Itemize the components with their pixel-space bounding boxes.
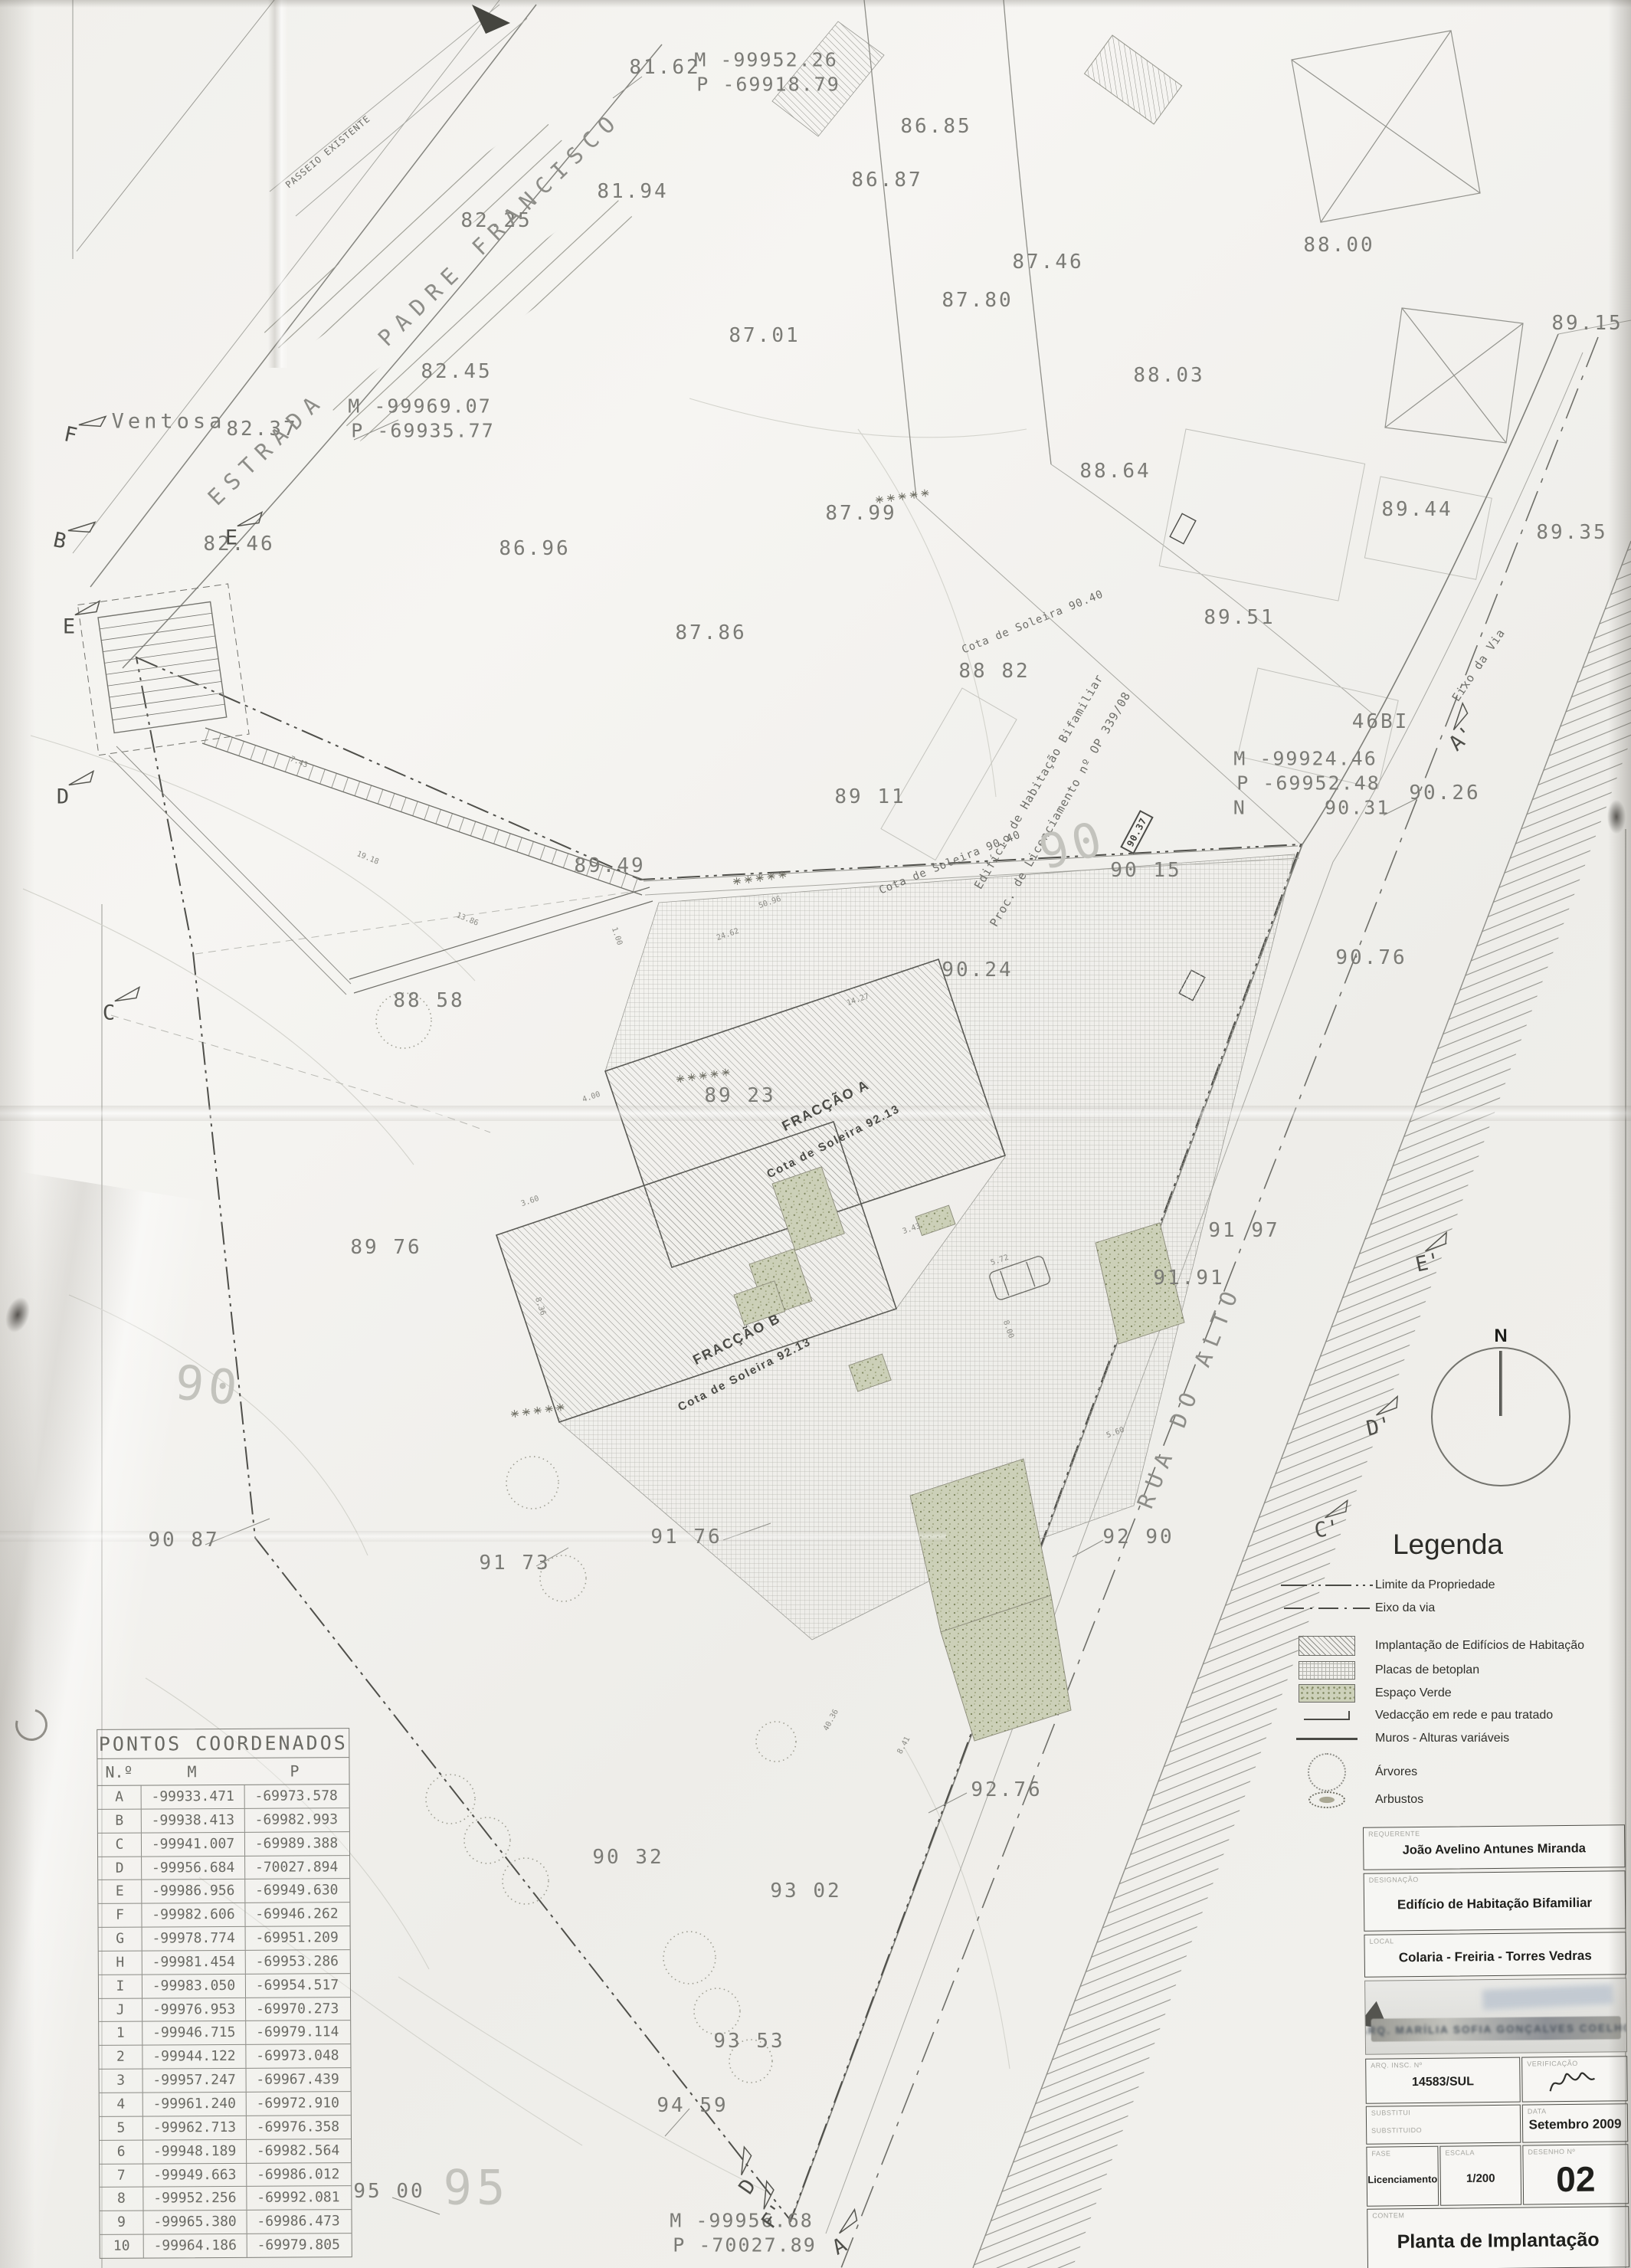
requerente-box: REQUERENTE João Avelino Antunes Miranda xyxy=(1363,1824,1626,1870)
section-marker: E' xyxy=(1413,1248,1443,1277)
point-id: 1 xyxy=(99,2022,142,2045)
point-p: -69992.081 xyxy=(246,2186,349,2210)
legend-item-label: Árvores xyxy=(1375,1765,1417,1779)
point-m: -99981.454 xyxy=(142,1951,245,1975)
plan-label: 90 15 xyxy=(1110,859,1181,882)
plan-label: 89 11 xyxy=(834,785,906,808)
point-p: -69979.805 xyxy=(247,2234,350,2257)
point-m: -99956.684 xyxy=(141,1856,244,1880)
plan-label: 89 76 xyxy=(350,1236,421,1259)
plan-label: 86.87 xyxy=(851,169,922,192)
table-row: G -99978.774 -69951.209 xyxy=(99,1926,350,1952)
plan-label: 81.94 xyxy=(597,180,668,203)
plan-label: 88.64 xyxy=(1079,460,1151,483)
local-box: LOCAL Colaria - Freiria - Torres Vedras xyxy=(1364,1932,1626,1978)
table-row: F -99982.606 -69946.262 xyxy=(98,1903,349,1928)
table-row: 7 -99949.663 -69986.012 xyxy=(100,2163,351,2188)
table-row: 9 -99965.380 -69986.473 xyxy=(100,2210,351,2235)
plan-label: 89.49 xyxy=(574,854,645,877)
point-m: -99949.663 xyxy=(142,2163,246,2187)
plan-label: N 90.31 xyxy=(1233,797,1390,819)
plan-label: 46BI xyxy=(1352,710,1410,733)
plan-label: 87.80 xyxy=(942,289,1013,312)
substituido-label: SUBSTITUIDO xyxy=(1371,2126,1422,2135)
legend-item: Implantação de Edifícios de Habitação xyxy=(1279,1636,1584,1656)
architect-stamp: ARQ. MARÍLIA SOFIA GONÇALVES COELHO xyxy=(1364,1978,1627,2055)
plan-label: 92 90 xyxy=(1102,1526,1174,1549)
legend-title: Legenda xyxy=(1268,1529,1628,1561)
plan-label: 88.03 xyxy=(1133,364,1204,387)
point-id: 4 xyxy=(100,2093,142,2116)
designacao-label: DESIGNAÇÃO xyxy=(1369,1876,1419,1884)
insc-value: 14583/SUL xyxy=(1366,2075,1519,2090)
plan-label: P -69918.79 xyxy=(696,74,840,96)
plan-label: 87.86 xyxy=(675,621,746,644)
scanned-site-plan-sheet: 81.62 M -99952.26 P -69918.79 86.85 86.8… xyxy=(0,0,1631,2268)
legend-swatch xyxy=(1279,1636,1375,1656)
escala-label: ESCALA xyxy=(1445,2148,1475,2156)
table-row: H -99981.454 -69953.286 xyxy=(99,1950,350,1975)
table-row: 2 -99944.122 -69973.048 xyxy=(99,2044,350,2070)
requerente-label: REQUERENTE xyxy=(1368,1830,1420,1838)
section-flag-icon xyxy=(74,598,103,622)
section-flag-icon xyxy=(1322,1497,1354,1525)
plan-label: 87.01 xyxy=(729,324,800,347)
legend-swatch xyxy=(1279,1791,1375,1808)
point-m: -99948.189 xyxy=(142,2140,246,2164)
plan-label: 95 00 xyxy=(353,2180,424,2203)
insc-label: ARQ. INSC. Nº xyxy=(1371,2061,1422,2070)
points-table: PONTOS COORDENADOS N.º M P A -99933.471 … xyxy=(97,1728,352,2259)
paper-edge-shadow xyxy=(0,0,1631,8)
plan-label: 88.00 xyxy=(1303,234,1374,257)
plan-label: 86.96 xyxy=(499,537,570,560)
point-p: -69972.910 xyxy=(246,2092,349,2116)
section-marker: E xyxy=(225,526,237,550)
plan-label: 91 73 xyxy=(479,1552,550,1575)
col-header-m: M xyxy=(140,1758,243,1785)
point-p: -69989.388 xyxy=(244,1832,348,1856)
plan-label: 81.62 xyxy=(629,56,700,79)
plan-label: 89.51 xyxy=(1204,606,1275,629)
substitui-label: SUBSTITUI xyxy=(1371,2109,1411,2117)
plan-label: 82.46 xyxy=(203,533,274,556)
point-m: -99944.122 xyxy=(142,2045,245,2069)
point-m: -99982.606 xyxy=(141,1903,244,1927)
point-m: -99976.953 xyxy=(142,1998,245,2021)
table-row: 8 -99952.256 -69992.081 xyxy=(100,2186,351,2211)
point-id: 7 xyxy=(100,2164,142,2187)
plan-label: 91 76 xyxy=(650,1526,722,1549)
plan-label: 90.26 xyxy=(1409,782,1480,805)
plan-label: P -69935.77 xyxy=(351,420,495,442)
section-marker: D xyxy=(57,785,69,809)
plan-label: 95 xyxy=(444,2160,510,2216)
section-marker: C xyxy=(103,1001,115,1025)
point-m: -99941.007 xyxy=(141,1833,244,1857)
points-table-header: N.º M P xyxy=(97,1758,349,1786)
substitui-box: SUBSTITUI SUBSTITUIDO xyxy=(1366,2105,1521,2145)
plan-label: Ventosa xyxy=(112,410,226,434)
point-id: 3 xyxy=(100,2070,142,2093)
plan-label: 88 58 xyxy=(393,989,464,1012)
legend-item-label: Implantação de Edifícios de Habitação xyxy=(1375,1639,1584,1653)
data-value: Setembro 2009 xyxy=(1523,2117,1627,2133)
plan-label: 89.44 xyxy=(1381,498,1453,521)
table-row: A -99933.471 -69973.578 xyxy=(98,1785,349,1810)
plan-label: M -99956.68 xyxy=(670,2210,814,2232)
table-row: I -99983.050 -69954.517 xyxy=(99,1974,350,1999)
stamp-band: ARQ. MARÍLIA SOFIA GONÇALVES COELHO xyxy=(1371,2016,1621,2041)
section-flag-icon xyxy=(236,510,265,533)
point-p: -69986.012 xyxy=(246,2163,349,2187)
plan-label: 90 87 xyxy=(148,1529,219,1552)
table-row: 3 -99957.247 -69967.439 xyxy=(100,2068,351,2093)
point-p: -69967.439 xyxy=(246,2068,349,2092)
desenho-value: 02 xyxy=(1524,2158,1629,2200)
point-m: -99952.256 xyxy=(142,2187,246,2211)
legend-item-label: Arbustos xyxy=(1375,1793,1423,1807)
point-id: F xyxy=(98,1904,141,1927)
legend-item: Eixo da via xyxy=(1279,1601,1435,1615)
point-id: E xyxy=(98,1880,141,1903)
legend-item-label: Placas de betoplan xyxy=(1375,1663,1479,1677)
table-row: D -99956.684 -70027.894 xyxy=(98,1856,349,1881)
compass-needle xyxy=(1499,1351,1502,1416)
point-id: A xyxy=(98,1786,141,1809)
plan-label: 90 32 xyxy=(592,1846,663,1869)
point-p: -69986.473 xyxy=(246,2210,349,2234)
plan-label: M -99952.26 xyxy=(694,49,838,71)
point-p: -69953.286 xyxy=(245,1950,349,1974)
point-p: -70027.894 xyxy=(244,1856,348,1880)
legend-item-label: Limite da Propriedade xyxy=(1375,1578,1495,1592)
legend: Legenda Limite da Propriedade Eixo da vi… xyxy=(1268,1529,1628,1858)
plan-label: M -99969.07 xyxy=(348,395,492,418)
point-id: 5 xyxy=(100,2116,142,2139)
table-row: 10 -99964.186 -69979.805 xyxy=(100,2234,352,2258)
legend-swatch xyxy=(1279,1585,1375,1586)
contem-value: Planta de Implantação xyxy=(1368,2229,1629,2254)
section-marker: D' xyxy=(1364,1412,1394,1440)
point-p: -69949.630 xyxy=(244,1880,348,1903)
plan-label: 91.91 xyxy=(1153,1267,1224,1290)
desenho-label: DESENHO Nº xyxy=(1528,2148,1575,2156)
legend-swatch xyxy=(1279,1684,1375,1703)
title-block: REQUERENTE João Avelino Antunes Miranda … xyxy=(1363,1824,1628,2268)
point-m: -99933.471 xyxy=(141,1785,244,1809)
point-m: -99938.413 xyxy=(141,1809,244,1833)
point-m: -99986.956 xyxy=(141,1880,244,1903)
point-id: J xyxy=(99,1998,142,2021)
legend-item: Limite da Propriedade xyxy=(1279,1578,1495,1592)
contem-label: CONTEM xyxy=(1372,2211,1404,2219)
legend-swatch xyxy=(1279,1738,1375,1740)
point-id: 8 xyxy=(100,2188,142,2211)
section-flag-icon xyxy=(113,985,142,1008)
point-p: -69982.564 xyxy=(246,2139,349,2163)
col-header-n: N.º xyxy=(97,1759,140,1785)
plan-label: 89.35 xyxy=(1536,521,1607,544)
table-row: 1 -99946.715 -69979.114 xyxy=(99,2021,350,2047)
point-p: -69954.517 xyxy=(245,1974,349,1998)
legend-swatch xyxy=(1279,1711,1375,1720)
point-id: 10 xyxy=(100,2235,143,2258)
plan-label: 82.45 xyxy=(421,360,492,383)
point-m: -99946.715 xyxy=(142,2021,245,2045)
point-p: -69976.358 xyxy=(246,2116,349,2139)
escala-value: 1/200 xyxy=(1441,2171,1521,2185)
point-m: -99961.240 xyxy=(142,2093,246,2116)
stamp-smear xyxy=(1482,1984,1613,2010)
legend-item-label: Espaço Verde xyxy=(1375,1686,1452,1700)
fase-value: Licenciamento xyxy=(1367,2173,1438,2185)
compass-north-label: N xyxy=(1494,1326,1507,1347)
designacao-box: DESIGNAÇÃO Edifício de Habitação Bifamil… xyxy=(1364,1870,1626,1932)
point-p: -69979.114 xyxy=(245,2021,349,2045)
plan-label: M -99924.46 xyxy=(1233,748,1377,770)
point-p: -69951.209 xyxy=(245,1926,349,1950)
insc-box: ARQ. INSC. Nº 14583/SUL xyxy=(1365,2057,1521,2104)
point-id: B xyxy=(98,1809,141,1832)
plan-label: 90.24 xyxy=(942,959,1013,982)
col-header-p: P xyxy=(243,1758,346,1785)
data-label: DATA xyxy=(1528,2107,1547,2115)
legend-item-label: Muros - Alturas variáveis xyxy=(1375,1732,1509,1745)
verificacao-box: VERIFICAÇÃO xyxy=(1521,2056,1628,2102)
legend-item: Muros - Alturas variáveis xyxy=(1279,1732,1509,1745)
point-p: -69973.048 xyxy=(245,2044,349,2068)
survey-dashed-lines xyxy=(111,890,642,1132)
plan-label: P -70027.89 xyxy=(673,2234,817,2257)
legend-item: Vedacção em rede e pau tratado xyxy=(1279,1709,1553,1722)
desenho-box: DESENHO Nº 02 xyxy=(1522,2144,1629,2204)
point-m: -99957.247 xyxy=(142,2069,246,2093)
legend-item: Placas de betoplan xyxy=(1279,1661,1479,1680)
point-m: -99962.713 xyxy=(142,2116,246,2140)
point-p: -69946.262 xyxy=(244,1903,348,1926)
legend-swatch xyxy=(1279,1753,1375,1791)
legend-item: Espaço Verde xyxy=(1279,1684,1452,1703)
point-m: -99965.380 xyxy=(142,2211,246,2234)
plan-label: 87.46 xyxy=(1012,251,1083,274)
stamp-text: ARQ. MARÍLIA SOFIA GONÇALVES COELHO xyxy=(1364,2022,1627,2037)
plan-label: 93 02 xyxy=(770,1880,841,1903)
plan-label: 91 97 xyxy=(1208,1219,1279,1242)
legend-item-label: Vedacção em rede e pau tratado xyxy=(1375,1709,1553,1722)
local-label: LOCAL xyxy=(1369,1937,1394,1945)
plan-label: 89 23 xyxy=(704,1084,775,1107)
local-value: Colaria - Freiria - Torres Vedras xyxy=(1365,1948,1626,1966)
plan-label: 88 82 xyxy=(958,660,1030,683)
fase-box: FASE Licenciamento xyxy=(1366,2146,1439,2207)
legend-swatch xyxy=(1279,1608,1375,1609)
data-box: DATA Setembro 2009 xyxy=(1522,2103,1629,2142)
point-m: -99978.774 xyxy=(142,1927,245,1951)
plan-label: 86.85 xyxy=(900,115,971,138)
point-id: H xyxy=(99,1951,142,1974)
table-row: 6 -99948.189 -69982.564 xyxy=(100,2139,351,2165)
legend-swatch xyxy=(1279,1661,1375,1680)
point-id: C xyxy=(98,1833,141,1856)
plan-label: 87.99 xyxy=(825,502,896,525)
legend-item: Árvores xyxy=(1279,1753,1417,1791)
table-row: 5 -99962.713 -69976.358 xyxy=(100,2116,351,2141)
table-row: C -99941.007 -69989.388 xyxy=(98,1832,349,1857)
plan-label: 92.76 xyxy=(971,1778,1042,1801)
fase-label: FASE xyxy=(1371,2149,1390,2157)
north-compass: N xyxy=(1431,1347,1570,1486)
plan-label: 94 59 xyxy=(657,2094,728,2117)
escala-box: ESCALA 1/200 xyxy=(1439,2145,1521,2206)
contem-box: CONTEM Planta de Implantação xyxy=(1367,2206,1629,2268)
plan-label: 90 xyxy=(172,1354,244,1417)
points-table-title: PONTOS COORDENADOS xyxy=(97,1729,349,1759)
point-id: 9 xyxy=(100,2211,142,2234)
point-p: -69973.578 xyxy=(244,1785,348,1808)
point-m: -99964.186 xyxy=(143,2234,247,2258)
legend-item: Arbustos xyxy=(1279,1791,1423,1808)
table-row: 4 -99961.240 -69972.910 xyxy=(100,2092,351,2117)
plan-label: 93 53 xyxy=(713,2030,784,2053)
plan-label: 90.76 xyxy=(1335,946,1407,969)
point-id: G xyxy=(99,1928,142,1951)
point-p: -69970.273 xyxy=(245,1998,349,2021)
section-flag-icon xyxy=(67,769,97,792)
table-row: E -99986.956 -69949.630 xyxy=(98,1880,349,1905)
requerente-value: João Avelino Antunes Miranda xyxy=(1364,1840,1624,1858)
section-marker: E xyxy=(63,615,75,639)
table-row: B -99938.413 -69982.993 xyxy=(98,1808,349,1834)
plan-label: P -69952.48 xyxy=(1236,772,1380,795)
plan-label: 89.15 xyxy=(1551,312,1623,335)
signature-scribble xyxy=(1545,2066,1599,2098)
point-id: I xyxy=(99,1975,142,1998)
legend-item-label: Eixo da via xyxy=(1375,1601,1435,1615)
designacao-value: Edifício de Habitação Bifamiliar xyxy=(1364,1895,1625,1913)
point-p: -69982.993 xyxy=(244,1808,348,1832)
point-id: D xyxy=(98,1857,141,1880)
point-id: 2 xyxy=(99,2046,142,2069)
point-m: -99983.050 xyxy=(142,1975,245,1998)
point-id: 6 xyxy=(100,2140,142,2163)
table-row: J -99976.953 -69970.273 xyxy=(99,1998,350,2023)
